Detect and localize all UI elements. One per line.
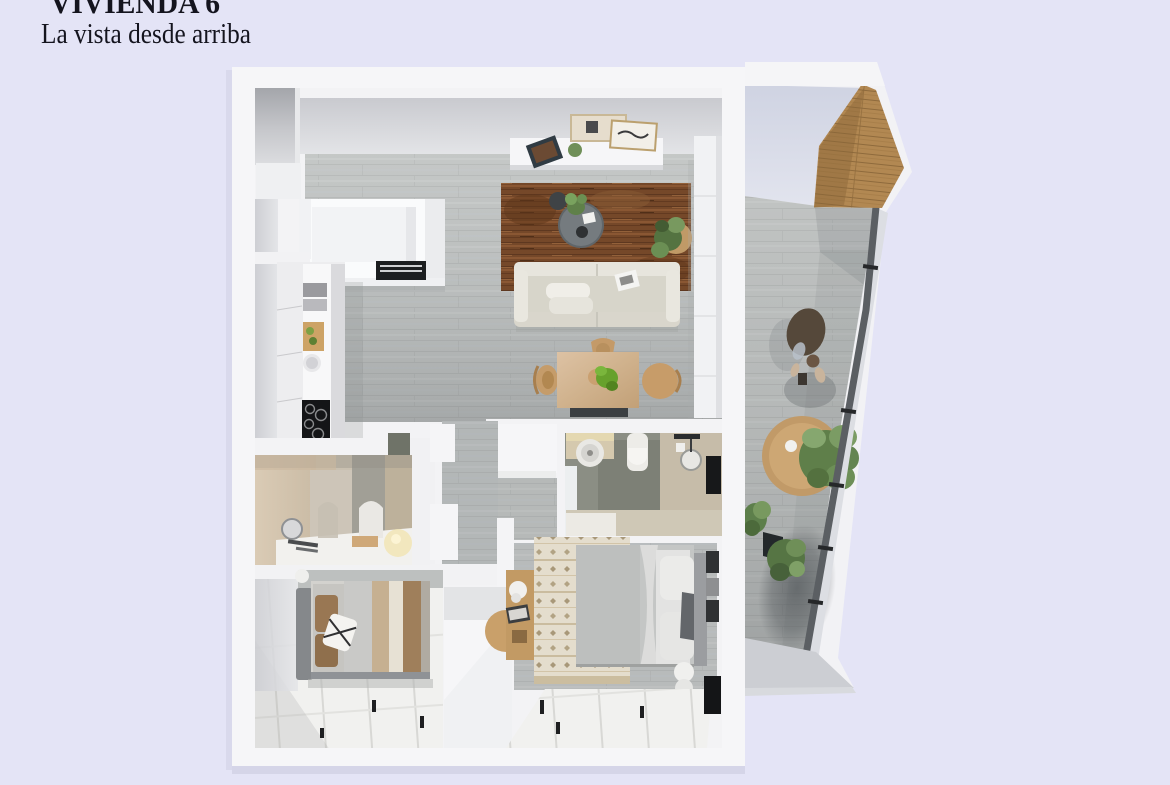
svg-text:VIVIENDA 6: VIVIENDA 6 xyxy=(50,0,220,20)
svg-text:La vista desde arriba: La vista desde arriba xyxy=(41,18,251,50)
